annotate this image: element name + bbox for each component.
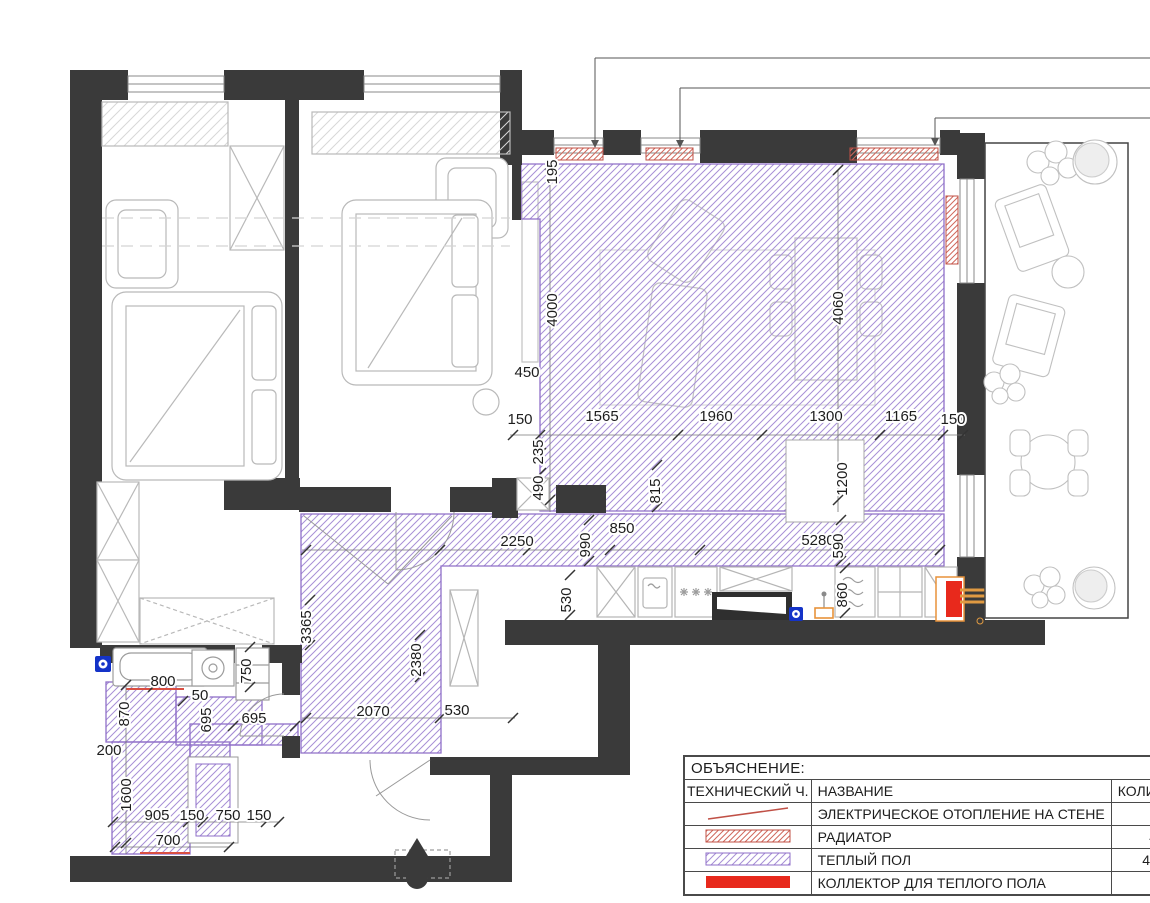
radiator	[556, 148, 603, 160]
dimension-label: 850	[609, 520, 634, 537]
dimension-label: 530	[444, 702, 469, 719]
collector-symbol	[704, 874, 792, 890]
wardrobe	[312, 112, 510, 154]
dimension-label: 870	[116, 701, 133, 726]
dimension-label: 905	[144, 807, 169, 824]
legend-row-electric-heating: ЭЛЕКТРИЧЕСКОЕ ОТОПЛЕНИЕ НА СТЕНЕ 3 м²	[684, 803, 1150, 826]
legend-row-radiator: РАДИАТОР 4 шт.	[684, 826, 1150, 849]
warm-floor-living-room	[521, 164, 944, 511]
dimension-label: 3365	[298, 610, 315, 643]
legend-item-qty: 1 шт.	[1111, 872, 1150, 896]
chair	[1010, 430, 1030, 456]
dimension-label: 195	[544, 159, 561, 184]
dimension-label: 695	[241, 710, 266, 727]
dimension-label: 530	[558, 587, 575, 612]
dimension-label: 750	[238, 658, 255, 683]
pillow	[252, 390, 276, 464]
radiator	[946, 196, 958, 264]
dimension-label: 700	[155, 832, 180, 849]
legend-item-name: ТЕПЛЫЙ ПОЛ	[811, 849, 1111, 872]
electric-heating-symbol	[704, 805, 792, 821]
dimension-label: 4000	[544, 293, 561, 326]
legend-title: ОБЪЯСНЕНИЕ:	[684, 756, 1150, 780]
washing-machine	[192, 650, 234, 686]
legend-col-qty: КОЛИЧЕСТВО	[1111, 780, 1150, 803]
legend-item-name: РАДИАТОР	[811, 826, 1111, 849]
dimension-label: 150	[940, 411, 965, 428]
radiator	[850, 148, 938, 160]
dimension-label: 1200	[834, 462, 851, 495]
dimension-label: 490	[530, 475, 547, 500]
pillow	[452, 295, 478, 367]
page: { "drawing": { "type": "apartment heatin…	[0, 0, 1150, 898]
dimension-label: 590	[830, 533, 847, 558]
legend-header-row: ТЕХНИЧЕСКИЙ Ч. НАЗВАНИЕ КОЛИЧЕСТВО	[684, 780, 1150, 803]
legend-item-name: КОЛЛЕКТОР ДЛЯ ТЕПЛОГО ПОЛА	[811, 872, 1111, 896]
dimension-label: 150	[507, 411, 532, 428]
dimension-label: 800	[150, 673, 175, 690]
dimension-label: 200	[96, 742, 121, 759]
dimension-label: 1165	[885, 408, 917, 425]
dimension-label: 990	[577, 532, 594, 557]
side-table	[473, 389, 499, 415]
dimension-label: 750	[215, 807, 240, 824]
legend-col-symbol: ТЕХНИЧЕСКИЙ Ч.	[684, 780, 811, 803]
pillow	[452, 215, 478, 287]
chair	[1068, 430, 1088, 456]
warm-floor-shower	[196, 764, 230, 836]
dimension-label: 235	[530, 439, 547, 464]
dimension-label: 50	[192, 687, 209, 704]
radiator-symbol	[704, 828, 792, 844]
dimension-label: 1300	[809, 408, 842, 425]
legend-item-qty: 3 м²	[1111, 803, 1150, 826]
legend-title-row: ОБЪЯСНЕНИЕ:	[684, 756, 1150, 780]
dimension-label: 1600	[118, 778, 135, 811]
chair	[1010, 470, 1030, 496]
dimension-label: 4060	[830, 291, 847, 324]
dimension-label: 815	[647, 478, 664, 503]
dimension-label: 695	[198, 707, 215, 732]
collector	[946, 581, 962, 617]
dimension-label: 2070	[356, 703, 389, 720]
side-table	[1052, 256, 1084, 288]
warm-floor-bathroom	[190, 742, 230, 757]
dimension-label: 450	[514, 364, 539, 381]
kitchen-island	[786, 440, 864, 522]
dimension-label: 150	[246, 807, 271, 824]
legend-row-collector: КОЛЛЕКТОР ДЛЯ ТЕПЛОГО ПОЛА 1 шт.	[684, 872, 1150, 896]
pillow	[252, 306, 276, 380]
armchair	[106, 200, 178, 288]
dimension-label: 2250	[500, 533, 533, 550]
dimension-label: 2380	[408, 643, 425, 676]
warm-floor-symbol	[704, 851, 792, 867]
dimension-label: 150	[179, 807, 204, 824]
legend-table: ОБЪЯСНЕНИЕ: ТЕХНИЧЕСКИЙ Ч. НАЗВАНИЕ КОЛИ…	[683, 755, 1150, 896]
legend-item-qty: 44,9 м²	[1111, 849, 1150, 872]
legend-item-name: ЭЛЕКТРИЧЕСКОЕ ОТОПЛЕНИЕ НА СТЕНЕ	[811, 803, 1111, 826]
legend-col-name: НАЗВАНИЕ	[811, 780, 1111, 803]
dimension-label: 1565	[585, 408, 618, 425]
dimension-label: 1960	[699, 408, 732, 425]
radiator	[646, 148, 693, 160]
dimension-label: 860	[834, 582, 851, 607]
chair	[1068, 470, 1088, 496]
legend-row-warm-floor: ТЕПЛЫЙ ПОЛ 44,9 м²	[684, 849, 1150, 872]
legend-item-qty: 4 шт.	[1111, 826, 1150, 849]
wardrobe	[102, 102, 228, 146]
